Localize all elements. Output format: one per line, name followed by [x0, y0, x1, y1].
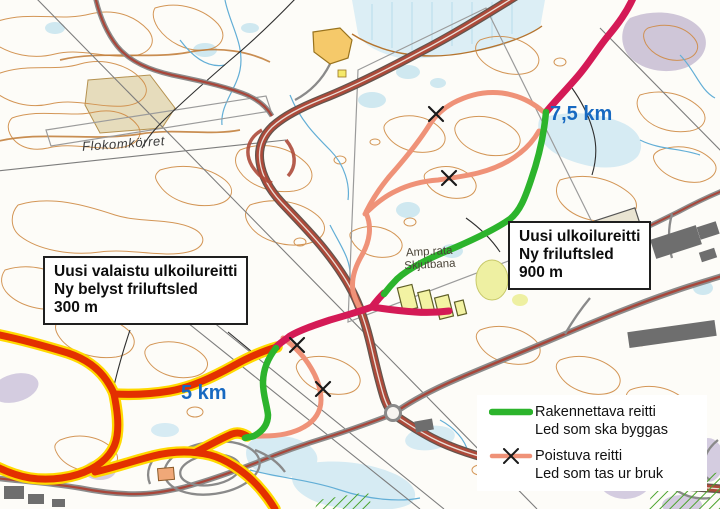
new-route-line-sample [485, 403, 535, 421]
salmon-line-x-icon [489, 447, 533, 465]
distance-marker-7-5km: 7,5 km [550, 103, 612, 126]
legend-label: Poistuva reitti [535, 447, 695, 465]
info-box-line: Ny belyst friluftsled [54, 281, 237, 299]
legend-label: Rakennettava reitti [535, 403, 695, 421]
shooting-range-label-line2: Skjutbana [404, 257, 456, 272]
legend-label-secondary: Led som tas ur bruk [535, 465, 695, 483]
info-box-lit-route: Uusi valaistu ulkoilureitti Ny belyst fr… [43, 256, 248, 325]
legend-item-removed-route: Poistuva reitti Led som tas ur bruk [485, 447, 695, 483]
removed-route-x-icon [485, 447, 535, 465]
info-box-line: 900 m [519, 264, 640, 282]
map-legend: Rakennettava reitti Led som ska byggas P… [477, 395, 707, 491]
info-box-line: 300 m [54, 299, 237, 317]
green-line-icon [489, 403, 533, 421]
legend-label-secondary: Led som ska byggas [535, 421, 695, 439]
legend-item-new-route: Rakennettava reitti Led som ska byggas [485, 403, 695, 439]
topographic-trail-map: 7,5 km 5 km Flokomkörret Amp.rata Skjutb… [0, 0, 720, 509]
roundabout [386, 406, 401, 421]
info-box-line: Ny friluftsled [519, 246, 640, 264]
info-box-line: Uusi ulkoilureitti [519, 228, 640, 246]
place-label-shooting-range: Amp.rata Skjutbana [403, 245, 455, 273]
info-box-line: Uusi valaistu ulkoilureitti [54, 263, 237, 281]
distance-marker-5km: 5 km [181, 382, 227, 405]
info-box-new-route: Uusi ulkoilureitti Ny friluftsled 900 m [508, 221, 651, 290]
